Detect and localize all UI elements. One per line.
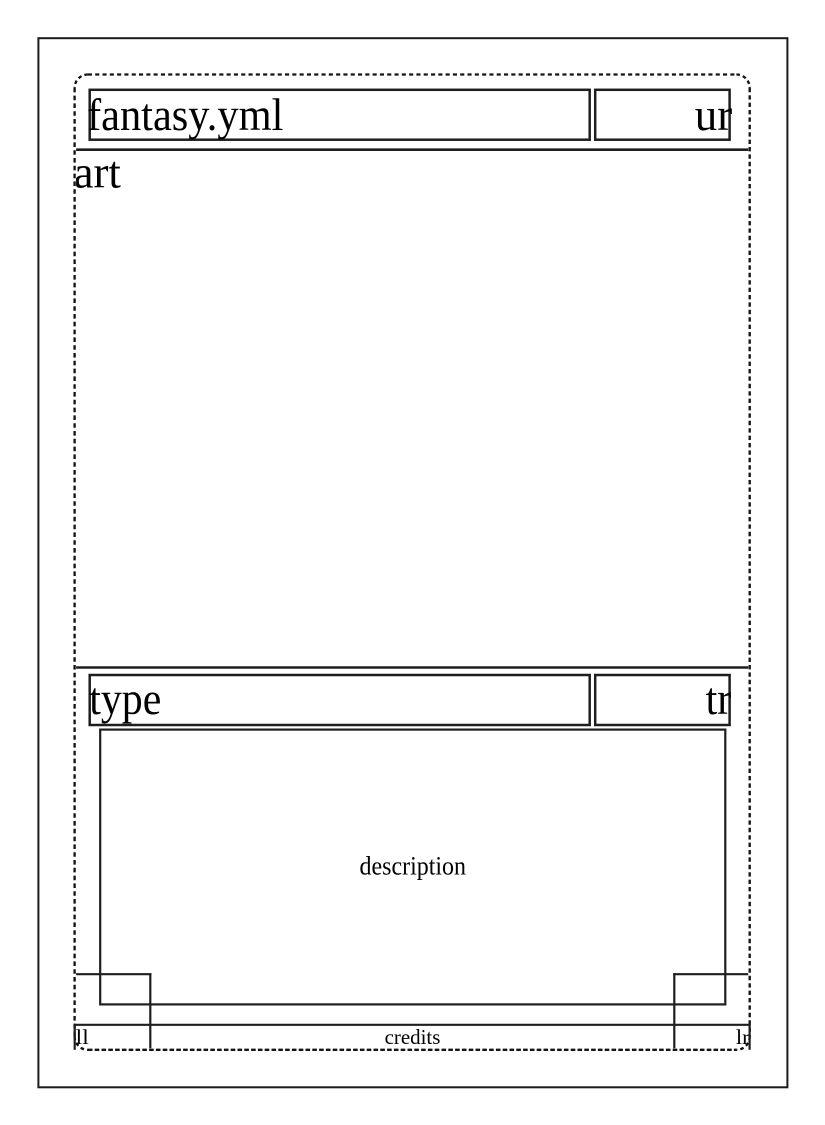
svg-text:ur: ur <box>695 89 733 140</box>
svg-text:fantasy.yml: fantasy.yml <box>87 89 283 140</box>
svg-text:type: type <box>89 673 161 724</box>
svg-text:ll: ll <box>76 1025 89 1049</box>
svg-text:tr: tr <box>706 673 732 724</box>
svg-text:credits: credits <box>385 1025 441 1049</box>
svg-text:art: art <box>74 147 122 198</box>
svg-text:lr: lr <box>736 1025 750 1049</box>
svg-text:description: description <box>360 851 467 880</box>
